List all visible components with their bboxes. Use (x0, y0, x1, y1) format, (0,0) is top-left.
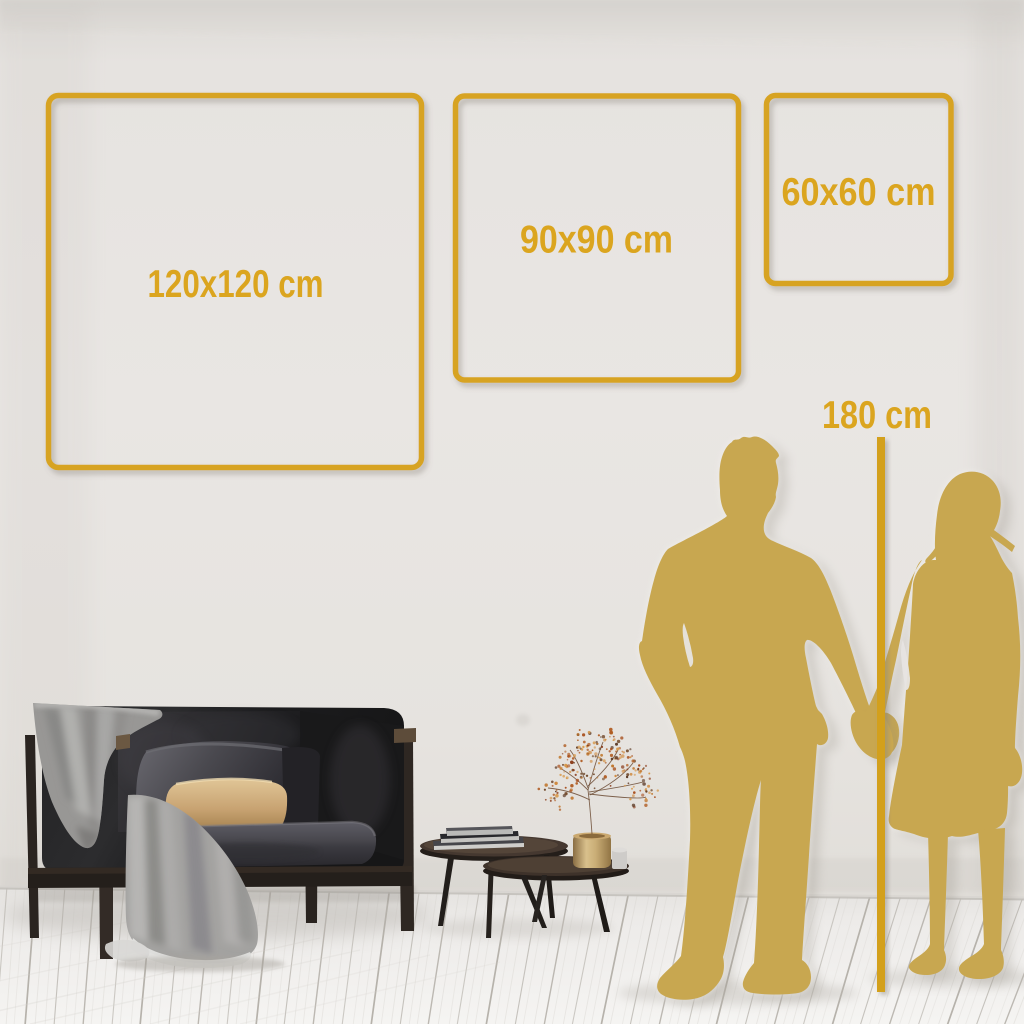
svg-text:180 cm: 180 cm (822, 394, 932, 437)
svg-text:60x60 cm: 60x60 cm (782, 171, 936, 214)
svg-text:120x120 cm: 120x120 cm (148, 263, 324, 306)
svg-text:90x90 cm: 90x90 cm (520, 219, 673, 262)
